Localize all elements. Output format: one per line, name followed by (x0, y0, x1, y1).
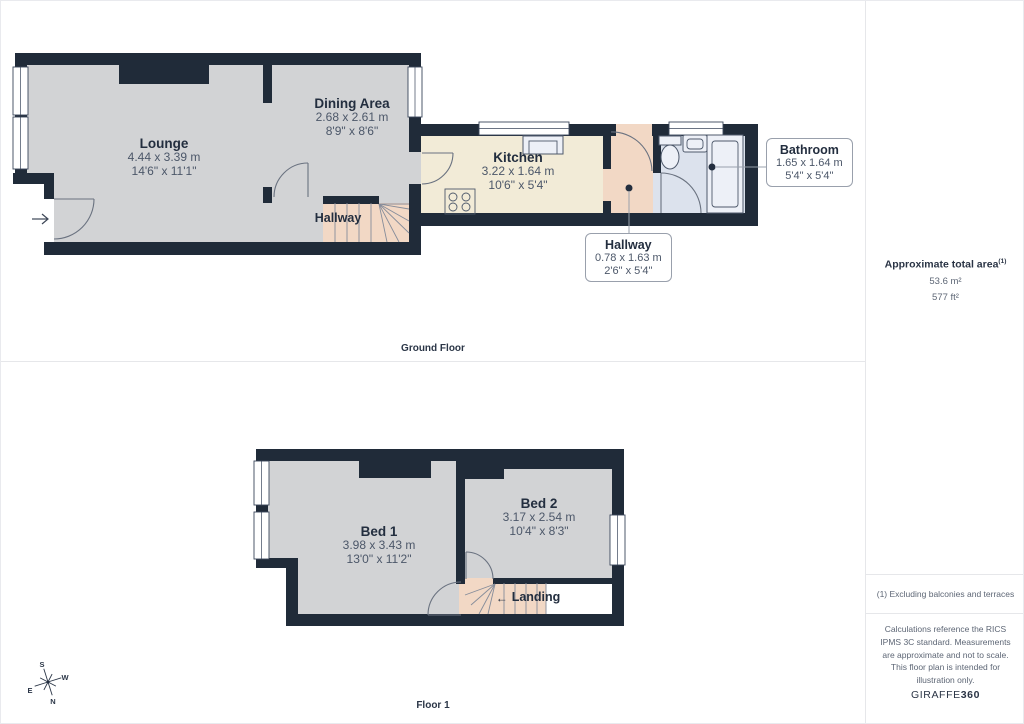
compass-west-label: W (61, 673, 69, 682)
toilet-fixture (659, 136, 681, 169)
basin-fixture (683, 135, 707, 152)
shower-fixture (707, 135, 743, 213)
brand-logo: GIRAFFE360 (866, 689, 1024, 701)
room-label-bed2: Bed 2 3.17 x 2.54 m 10'4" x 8'3" (503, 496, 576, 538)
bathroom-door-opening (653, 173, 661, 213)
floorplan-drawing: S W E N (1, 1, 865, 724)
ground-floor-title: Ground Floor (1, 343, 865, 354)
total-area-metric: 53.6 m² (866, 276, 1024, 287)
hallway-callout: Hallway 0.78 x 1.63 m 2'6" x 5'4" (585, 233, 672, 282)
ground-floor-plan (13, 53, 766, 255)
footnote-marker: (1) (998, 258, 1006, 265)
compass-east-label: E (27, 686, 32, 695)
bathroom-callout-anchor (709, 164, 716, 171)
compass-south-label: S (39, 660, 44, 669)
dining-kitchen-opening (409, 152, 421, 184)
footnote: (1) Excluding balconies and terraces (866, 574, 1024, 614)
hallway-entry-opening (616, 124, 652, 136)
floor-divider (1, 361, 865, 362)
total-area-imperial: 577 ft² (866, 292, 1024, 303)
total-area-title: Approximate total area(1) (866, 258, 1024, 271)
room-label-dining: Dining Area 2.68 x 2.61 m 8'9" x 8'6" (314, 96, 389, 138)
bed2-door-opening (465, 578, 493, 584)
hallway-callout-anchor (626, 185, 633, 192)
bathroom-callout: Bathroom 1.65 x 1.64 m 5'4" x 5'4" (766, 138, 853, 187)
kitchen-hallway-opening (603, 169, 611, 201)
first-floor-title: Floor 1 (1, 700, 865, 711)
room-label-lounge: Lounge 4.44 x 3.39 m 14'6" x 11'1" (128, 136, 201, 178)
floorplan-page: S W E N Lounge 4.44 x 3.39 m 14'6" x 11'… (0, 0, 1024, 724)
room-label-landing: ← Landing (496, 590, 561, 605)
room-label-kitchen: Kitchen 3.22 x 1.64 m 10'6" x 5'4" (482, 150, 555, 192)
info-sidebar: Approximate total area(1) 53.6 m² 577 ft… (865, 1, 1024, 724)
room-label-hallway-ground: Hallway (315, 211, 362, 226)
disclaimer-text: Calculations reference the RICS IPMS 3C … (866, 623, 1024, 687)
landing-direction-arrow: ← (496, 591, 508, 605)
room-label-bed1: Bed 1 3.98 x 3.43 m 13'0" x 11'2" (343, 524, 416, 566)
total-area-block: Approximate total area(1) 53.6 m² 577 ft… (866, 258, 1024, 303)
